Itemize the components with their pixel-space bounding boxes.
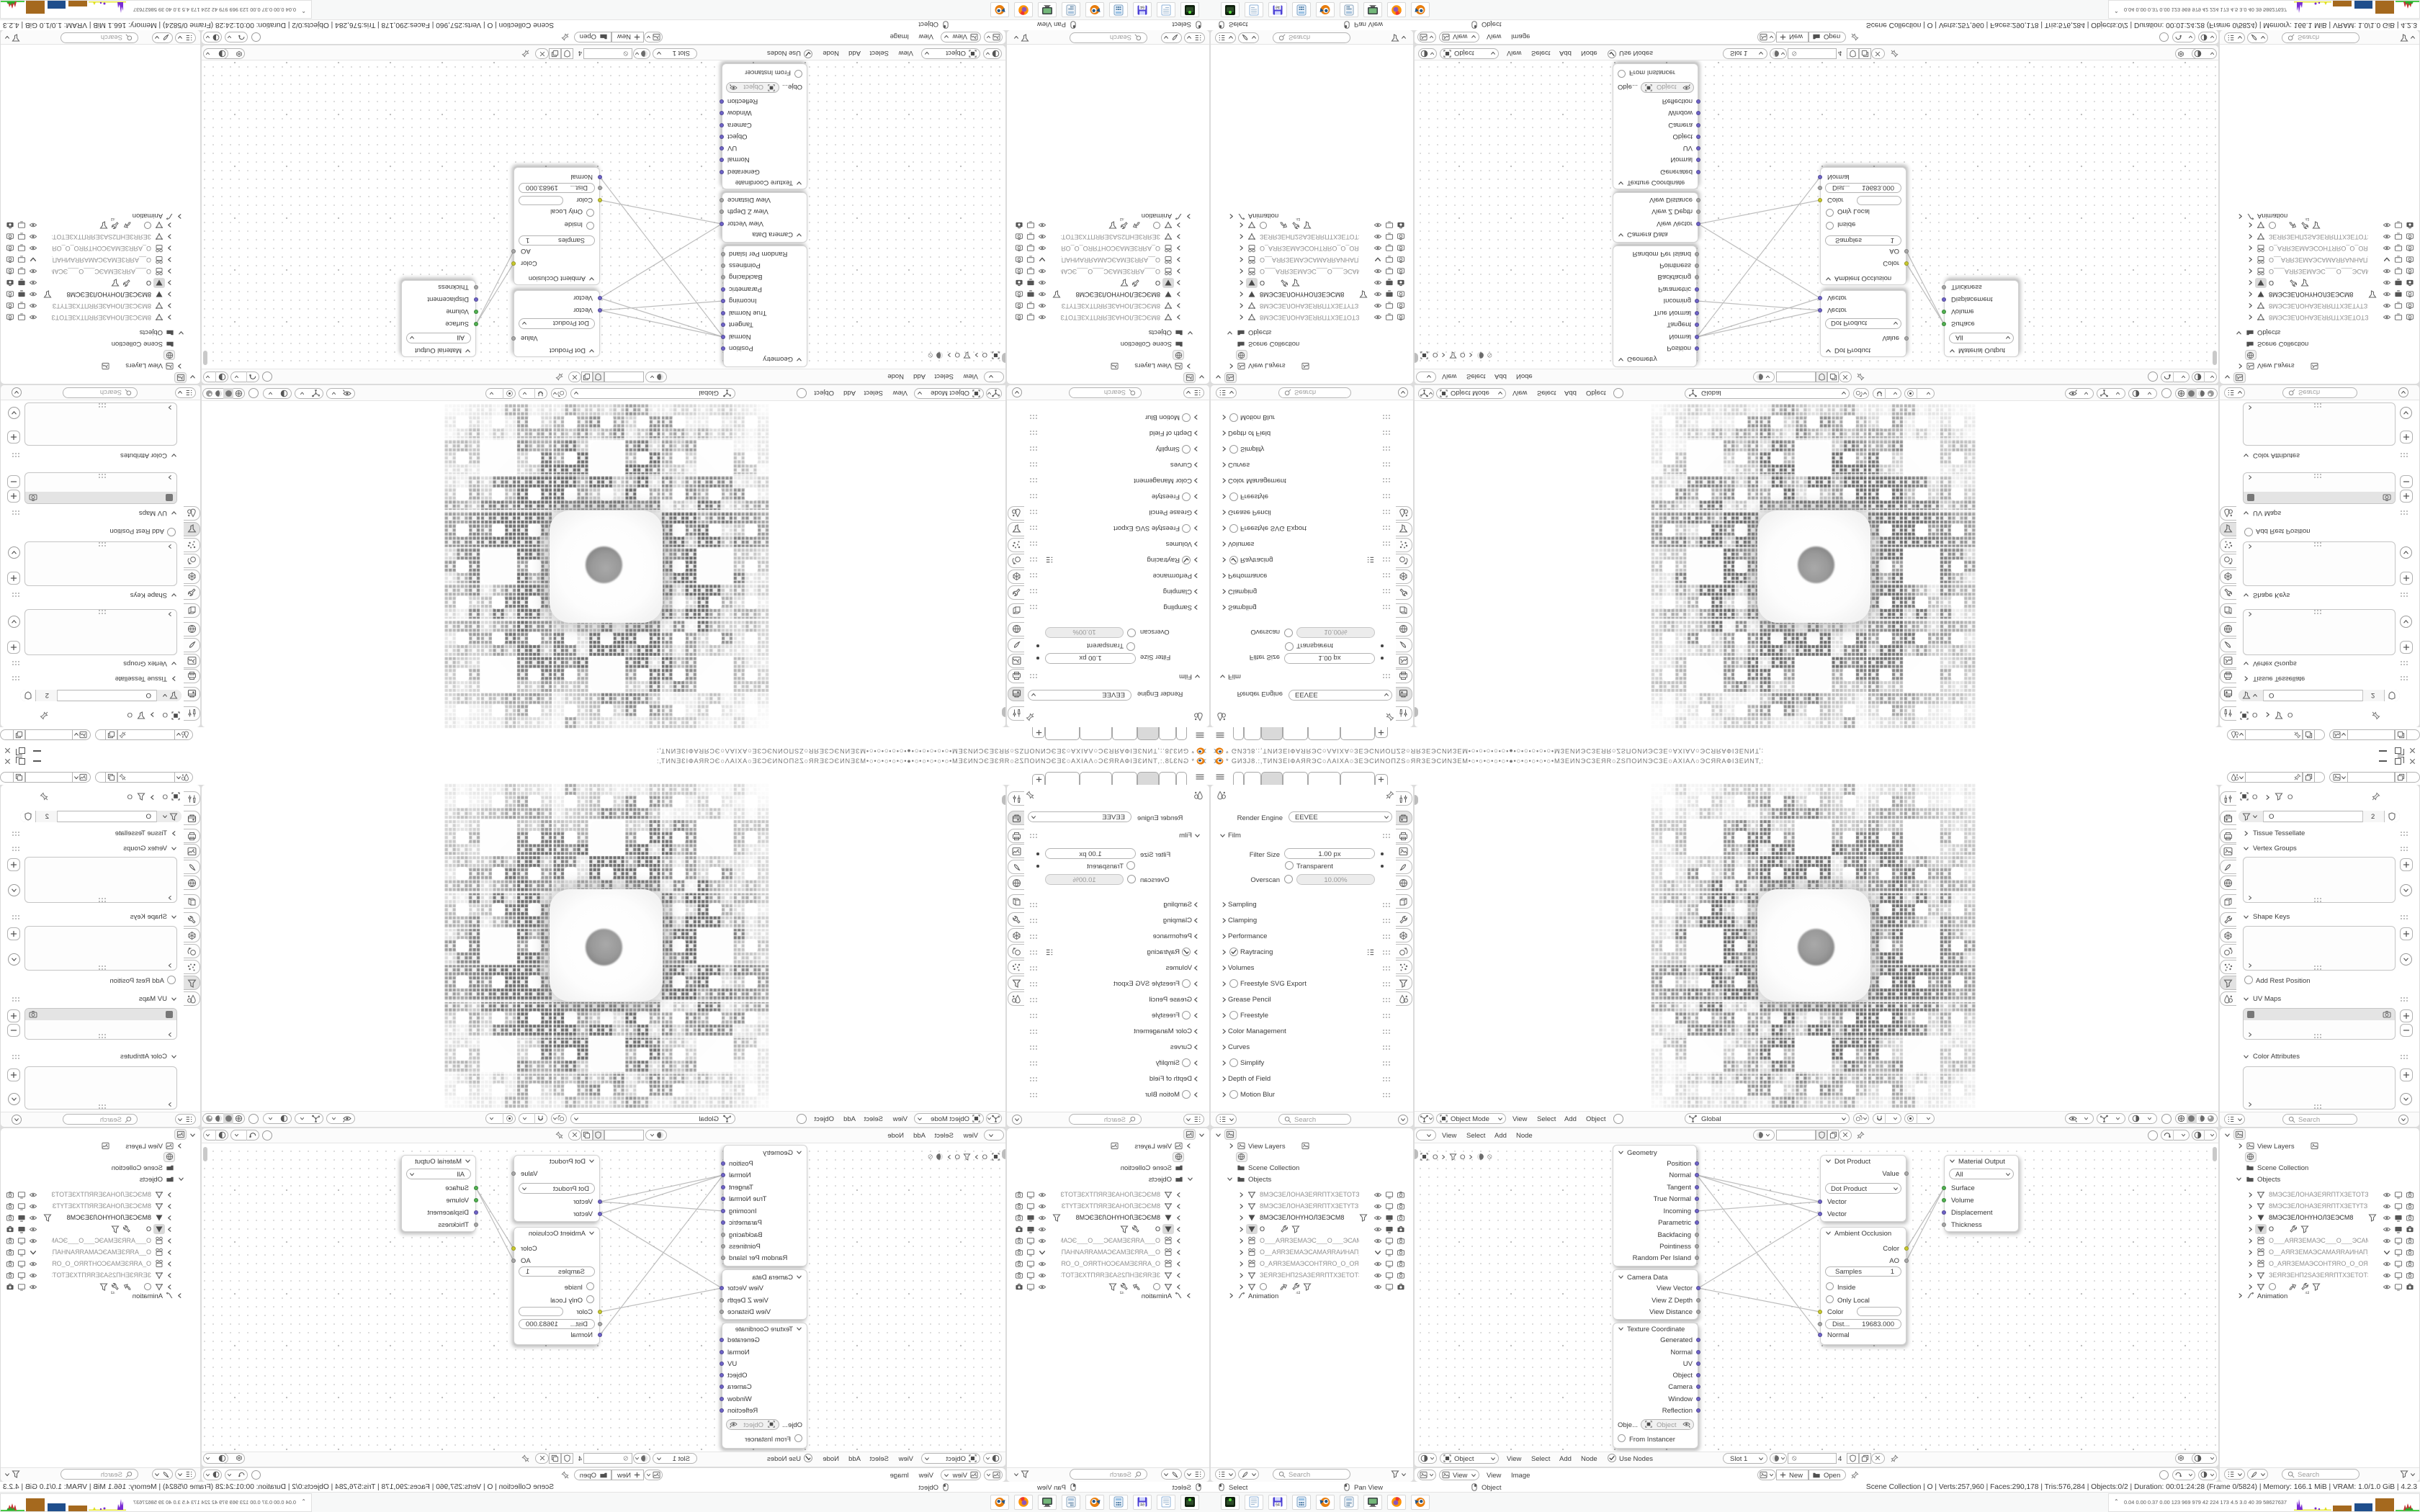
svg-text:64: 64 (1276, 1503, 1280, 1508)
svg-text:64: 64 (1140, 4, 1144, 9)
svg-text:64: 64 (1276, 4, 1280, 9)
svg-text:64: 64 (1140, 1503, 1144, 1508)
